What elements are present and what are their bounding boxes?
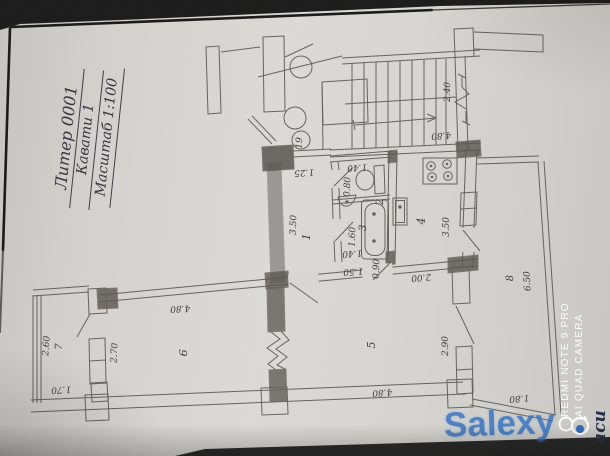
photo-grain-overlay (0, 0, 610, 456)
floor-plan-drawing: 12345678193.501.251.400.801.601.401.500.… (0, 0, 610, 456)
camera-watermark-line1: REDMI NOTE 9 PRO (559, 287, 573, 417)
camera-watermark-line2: AI QUAD CAMERA (573, 287, 587, 417)
floor-plan-photo: Литер 0001 Кавати 1 Масштаб 1:100 (0, 0, 610, 456)
salexy-watermark: Salexy (443, 402, 555, 446)
corner-handwriting: аси (590, 397, 610, 456)
camera-watermark: REDMI NOTE 9 PRO AI QUAD CAMERA (559, 287, 587, 417)
